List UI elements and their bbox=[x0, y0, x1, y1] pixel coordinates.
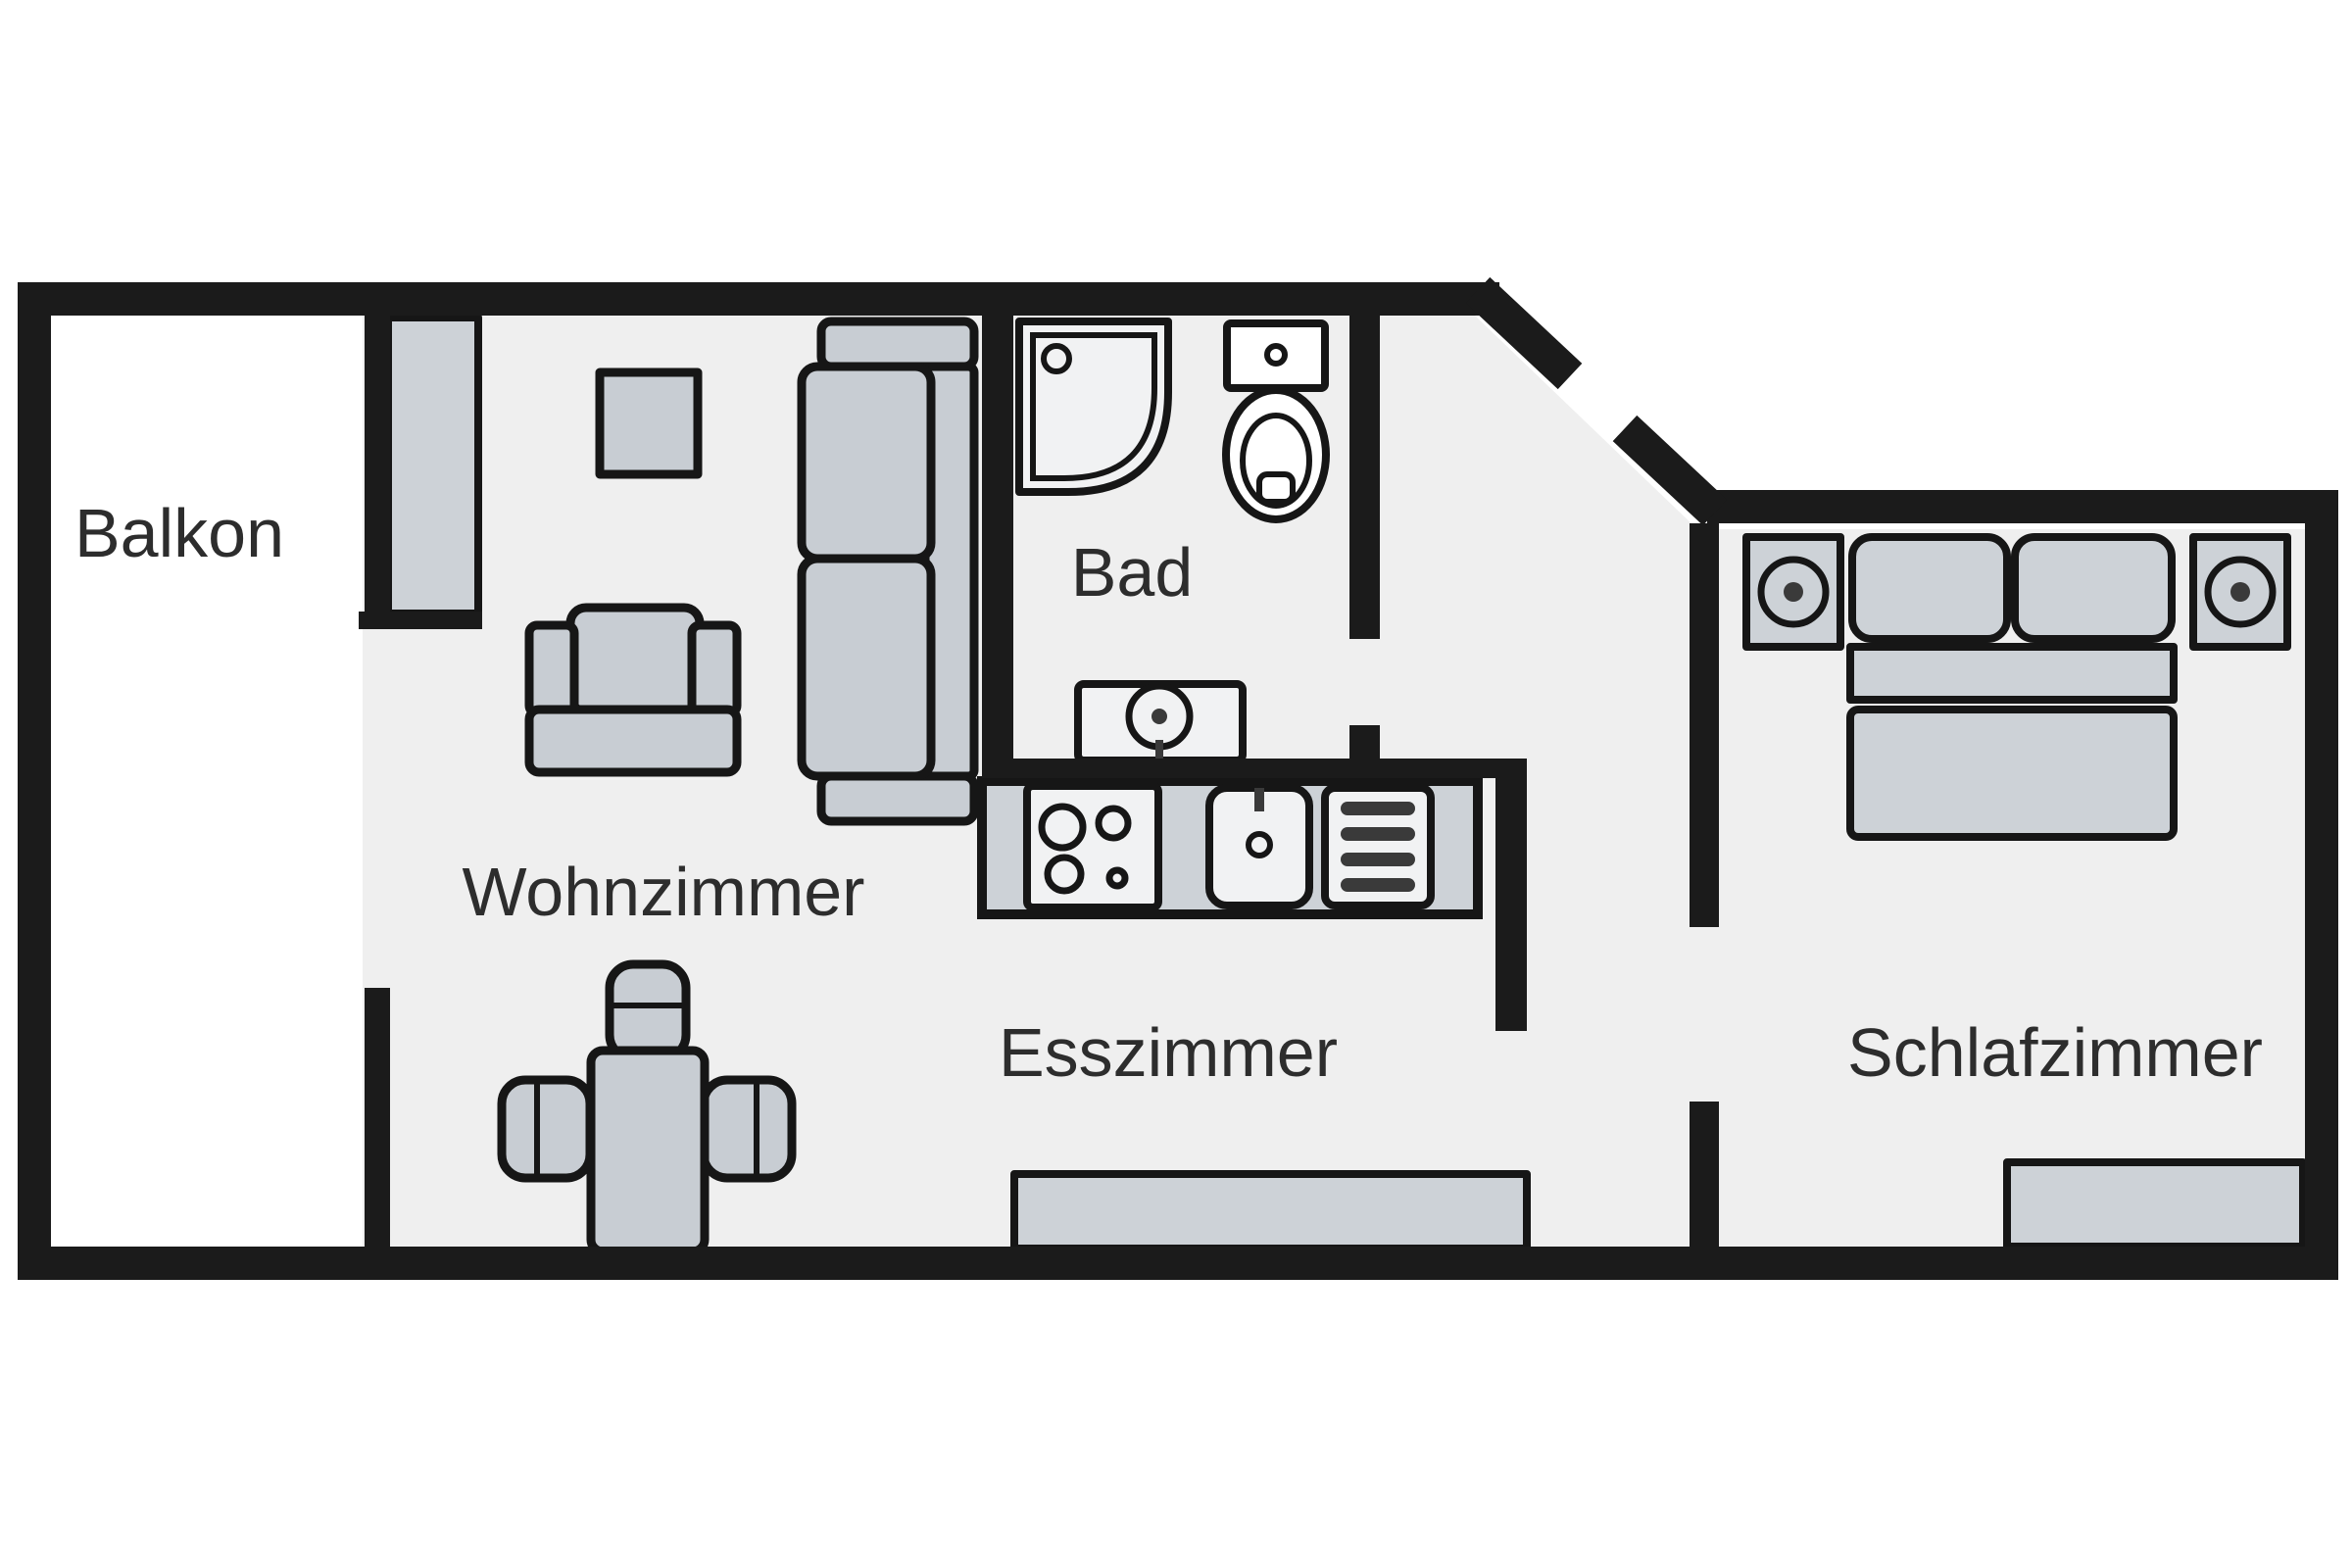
dishwasher-rack bbox=[1341, 853, 1415, 866]
dining-table-icon bbox=[591, 1051, 705, 1251]
outer-wall-top bbox=[18, 282, 1499, 316]
room-label-balkon: Balkon bbox=[74, 495, 284, 571]
toilet-icon bbox=[1226, 323, 1326, 519]
armchair-seat bbox=[529, 710, 737, 772]
speaker-dot-left bbox=[1784, 582, 1803, 602]
sofa-armrest-top bbox=[821, 321, 974, 367]
sofa-icon bbox=[802, 321, 974, 821]
bed-blanket-band bbox=[1850, 647, 2174, 700]
kitchen-wall-right bbox=[1495, 778, 1527, 1031]
armchair-back bbox=[570, 608, 700, 711]
armchair-armrest-left bbox=[529, 625, 574, 713]
dishwasher-icon bbox=[1325, 788, 1431, 906]
speaker-dot-right bbox=[2230, 582, 2250, 602]
nightstand-speaker-icon bbox=[2193, 537, 2287, 647]
balcony-partition-lower bbox=[365, 988, 390, 1247]
bed-body bbox=[1850, 710, 2174, 837]
bathroom-wall-bottom bbox=[982, 759, 1527, 778]
pillow-icon bbox=[2015, 537, 2172, 639]
armchair-armrest-right bbox=[692, 625, 737, 713]
stove-icon bbox=[1027, 786, 1158, 907]
dining-chair-icon bbox=[610, 964, 686, 1058]
dining-chair-icon bbox=[704, 1080, 792, 1178]
kitchen-sink-icon bbox=[1209, 788, 1309, 906]
toilet-tank bbox=[1227, 323, 1325, 388]
room-label-schlafzimmer: Schlafzimmer bbox=[1847, 1014, 2263, 1091]
sofa-armrest-bottom bbox=[821, 776, 974, 821]
armchair-icon bbox=[529, 608, 737, 772]
floor-plan-canvas: Balkon Wohnzimmer Bad Esszimmer Schlafzi… bbox=[0, 0, 2352, 1568]
balcony-door-panel bbox=[388, 318, 478, 613]
nightstand-speaker-icon bbox=[1746, 537, 1840, 647]
room-label-esszimmer: Esszimmer bbox=[999, 1014, 1338, 1091]
bathroom-wall-right-stub bbox=[1349, 725, 1380, 778]
bathroom-wall-left bbox=[982, 316, 1013, 778]
dining-chair-icon bbox=[502, 1080, 590, 1178]
dining-chair-right bbox=[704, 1080, 792, 1178]
dining-chair-top bbox=[610, 964, 686, 1058]
sofa-cushion-1 bbox=[802, 367, 931, 559]
dining-chair-left bbox=[502, 1080, 590, 1178]
shower-icon bbox=[1019, 321, 1168, 492]
shower-tray bbox=[1019, 321, 1168, 492]
sofa-cushion-2 bbox=[802, 559, 931, 776]
sideboard-icon bbox=[1014, 1174, 1527, 1249]
stove-body bbox=[1027, 786, 1158, 907]
coffee-table-icon bbox=[600, 372, 698, 474]
double-bed-icon bbox=[1850, 537, 2174, 837]
kitchen-counter-icon bbox=[982, 781, 1478, 914]
dishwasher-rack bbox=[1341, 827, 1415, 841]
outer-wall-right bbox=[2305, 490, 2338, 1280]
pillow-icon bbox=[1852, 537, 2007, 639]
bedroom-wall-left-upper bbox=[1690, 523, 1719, 927]
bedroom-top-wall bbox=[1707, 490, 2338, 523]
washbasin-icon bbox=[1078, 684, 1243, 761]
bathroom-wall-right-upper bbox=[1349, 316, 1380, 639]
washbasin-drain bbox=[1151, 709, 1167, 724]
bedroom-wall-left-lower bbox=[1690, 1102, 1719, 1247]
sink-tap bbox=[1254, 788, 1264, 811]
room-label-bad: Bad bbox=[1071, 534, 1194, 611]
dishwasher-rack bbox=[1341, 878, 1415, 892]
balcony-partition-upper bbox=[365, 316, 390, 627]
outer-wall-left bbox=[18, 282, 51, 1280]
dishwasher-rack bbox=[1341, 802, 1415, 815]
balcony-floor bbox=[53, 316, 363, 1247]
room-label-wohnzimmer: Wohnzimmer bbox=[462, 854, 864, 930]
floor-plan-page: Balkon Wohnzimmer Bad Esszimmer Schlafzi… bbox=[0, 0, 2352, 1568]
outer-wall-bottom bbox=[18, 1247, 2338, 1280]
sideboard-icon bbox=[2007, 1162, 2303, 1247]
washbasin-tap bbox=[1155, 740, 1163, 761]
